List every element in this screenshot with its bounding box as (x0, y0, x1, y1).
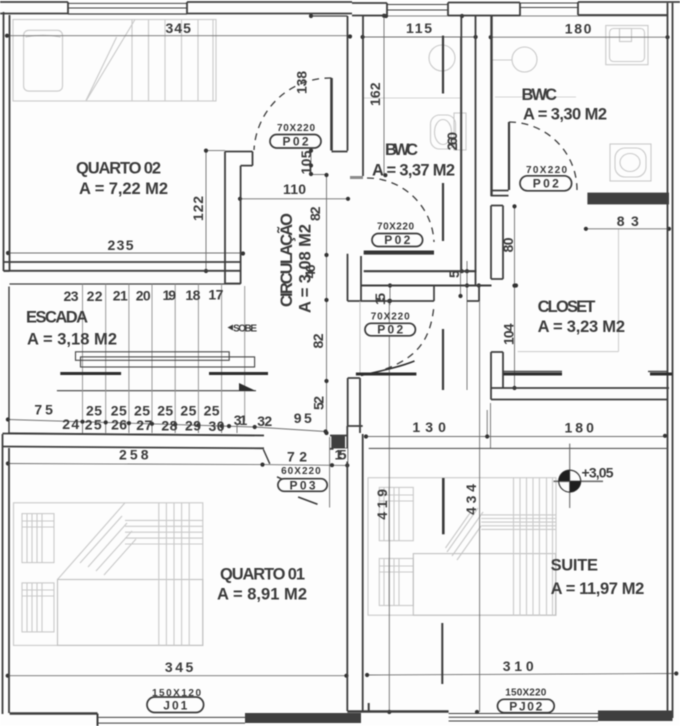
svg-text:70X220: 70X220 (371, 312, 410, 323)
svg-text:30: 30 (209, 418, 225, 434)
svg-text:235: 235 (108, 237, 134, 253)
svg-text:434: 434 (463, 484, 479, 515)
svg-text:25: 25 (180, 403, 196, 419)
svg-text:BWC: BWC (522, 86, 558, 104)
svg-text:A = 3,18 M2: A = 3,18 M2 (27, 331, 117, 349)
svg-text:CLOSET: CLOSET (538, 298, 596, 316)
svg-text:345: 345 (165, 659, 194, 675)
svg-text:32: 32 (257, 413, 272, 429)
svg-text:15: 15 (335, 447, 347, 463)
svg-text:70X220: 70X220 (277, 123, 315, 134)
svg-text:122: 122 (190, 196, 206, 221)
svg-text:150X220: 150X220 (505, 688, 546, 699)
svg-text:QUARTO 01: QUARTO 01 (220, 566, 305, 584)
svg-text:A = 8,91 M2: A = 8,91 M2 (217, 586, 307, 604)
svg-text:A = 7,22 M2: A = 7,22 M2 (79, 180, 168, 198)
svg-text:28: 28 (161, 417, 177, 433)
svg-text:A = 3,37 M2: A = 3,37 M2 (372, 162, 455, 180)
svg-text:26: 26 (111, 417, 127, 433)
svg-text:25: 25 (157, 403, 173, 419)
svg-text:21: 21 (113, 288, 128, 304)
svg-text:29: 29 (185, 418, 201, 434)
svg-text:46: 46 (302, 264, 318, 278)
svg-text:60X220: 60X220 (281, 466, 321, 477)
svg-text:82: 82 (307, 206, 323, 221)
svg-text:SUITE: SUITE (551, 557, 598, 575)
svg-text:260: 260 (444, 132, 460, 151)
svg-text:QUARTO 02: QUARTO 02 (76, 160, 161, 178)
svg-text:20: 20 (136, 288, 151, 304)
svg-text:27: 27 (136, 417, 152, 433)
svg-text:180: 180 (565, 420, 595, 436)
svg-text:310: 310 (503, 658, 534, 674)
svg-text:15: 15 (372, 293, 388, 305)
svg-text:130: 130 (412, 419, 446, 435)
svg-text:J01: J01 (163, 699, 187, 713)
svg-text:23: 23 (64, 288, 79, 304)
svg-text:19: 19 (163, 287, 177, 303)
svg-text:31: 31 (234, 412, 248, 428)
svg-text:ESCADA: ESCADA (26, 309, 88, 327)
svg-text:80: 80 (500, 237, 516, 252)
svg-text:104: 104 (501, 323, 517, 345)
svg-text:+3,05: +3,05 (582, 465, 614, 481)
svg-text:P03: P03 (290, 479, 316, 493)
svg-text:P02: P02 (533, 177, 559, 191)
svg-text:22: 22 (87, 288, 103, 304)
svg-text:70X220: 70X220 (526, 165, 567, 176)
svg-text:110: 110 (283, 181, 306, 197)
svg-text:115: 115 (406, 20, 432, 36)
svg-text:18: 18 (185, 287, 200, 303)
svg-text:A = 11,97 M2: A = 11,97 M2 (551, 580, 645, 598)
svg-text:A = 3,23 M2: A = 3,23 M2 (538, 318, 625, 336)
svg-text:25: 25 (85, 416, 102, 432)
svg-text:82: 82 (310, 333, 326, 348)
svg-text:17: 17 (208, 287, 223, 303)
svg-text:BWC: BWC (385, 141, 418, 159)
svg-text:105: 105 (298, 150, 314, 174)
svg-text:P02: P02 (377, 323, 403, 337)
svg-text:P02: P02 (283, 135, 309, 149)
svg-text:419: 419 (374, 489, 390, 520)
svg-text:P02: P02 (384, 233, 410, 247)
svg-text:CIRCULAÇÃO: CIRCULAÇÃO (276, 213, 296, 307)
svg-text:345: 345 (166, 20, 192, 36)
svg-text:258: 258 (119, 447, 149, 463)
svg-text:24: 24 (62, 416, 79, 432)
svg-text:180: 180 (565, 21, 592, 37)
svg-text:SOBE: SOBE (233, 324, 257, 335)
svg-text:A = 3,30 M2: A = 3,30 M2 (523, 106, 607, 124)
svg-text:162: 162 (367, 82, 383, 106)
svg-text:25: 25 (204, 403, 220, 419)
svg-text:70X220: 70X220 (377, 222, 414, 233)
svg-text:52: 52 (311, 396, 327, 410)
svg-text:138: 138 (294, 71, 310, 94)
